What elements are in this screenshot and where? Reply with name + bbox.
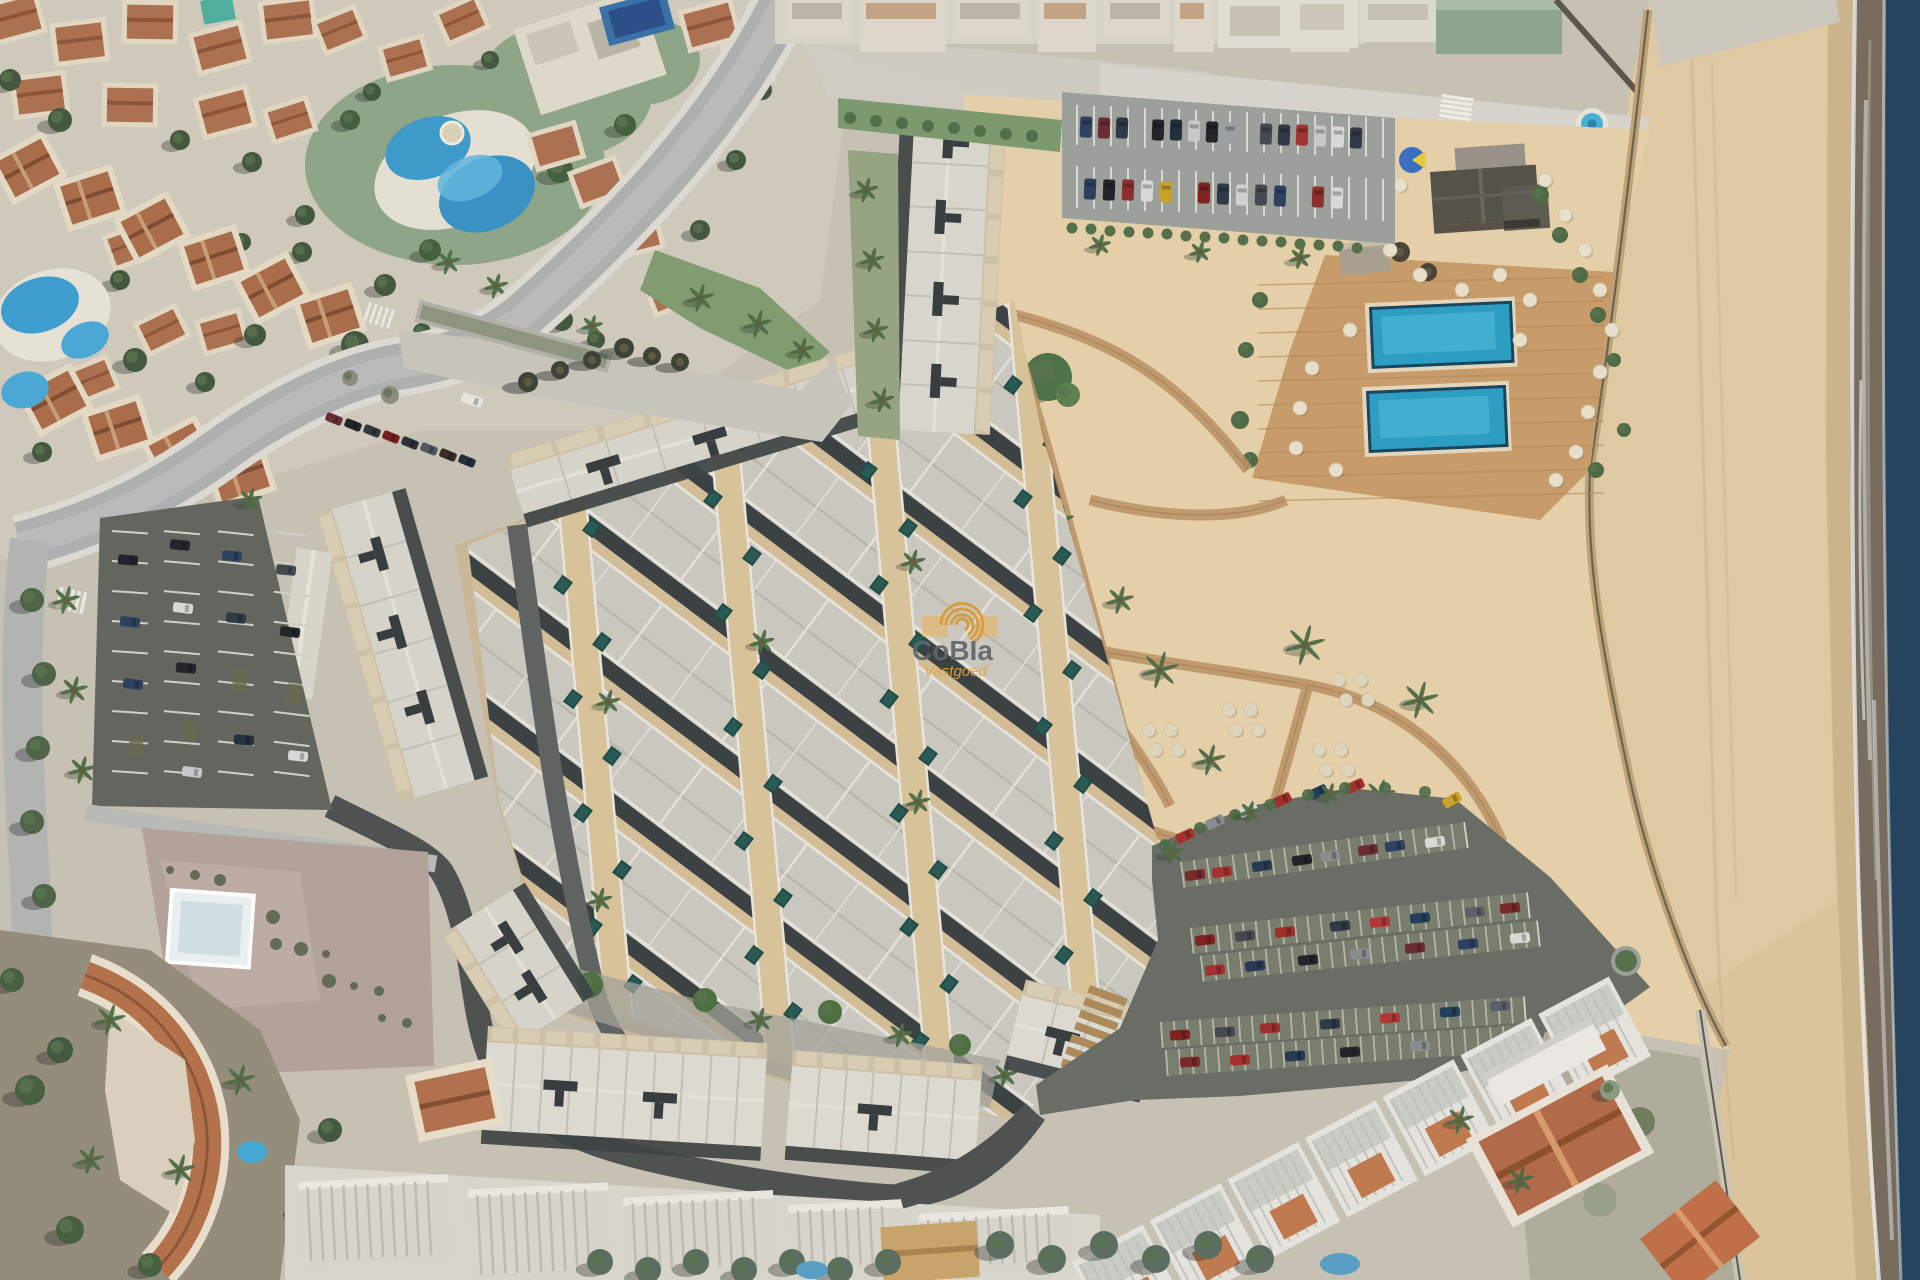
svg-text:Vastgoed: Vastgoed — [924, 663, 987, 680]
svg-text:CoBIa: CoBIa — [912, 635, 993, 666]
